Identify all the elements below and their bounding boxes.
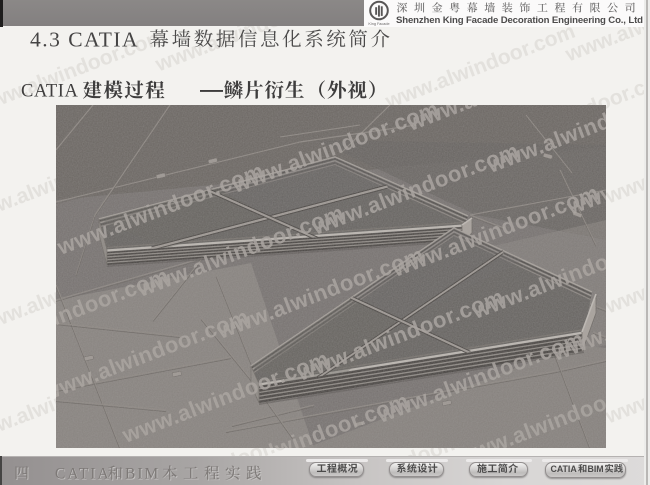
svg-text:CATIA: CATIA	[55, 466, 111, 483]
svg-text:CATIA: CATIA	[21, 82, 79, 102]
svg-text:4.3 CATIA: 4.3 CATIA	[30, 28, 139, 52]
svg-text:BIM: BIM	[125, 466, 160, 483]
svg-text:BIM: BIM	[588, 464, 604, 474]
svg-text:Shenzhen King Facade Decoratio: Shenzhen King Facade Decoration Engineer…	[396, 15, 643, 26]
svg-text:CATIA: CATIA	[551, 464, 578, 474]
